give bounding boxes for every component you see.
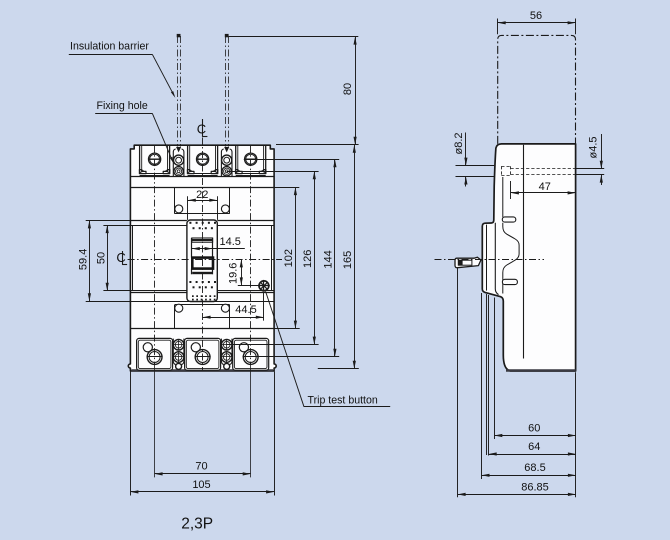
svg-text:Fixing hole: Fixing hole xyxy=(97,100,148,112)
svg-text:70: 70 xyxy=(195,461,207,473)
svg-text:86.85: 86.85 xyxy=(521,482,549,494)
svg-text:22: 22 xyxy=(196,189,208,201)
svg-text:C: C xyxy=(116,250,125,265)
svg-text:105: 105 xyxy=(192,479,210,491)
svg-text:68.5: 68.5 xyxy=(524,462,545,474)
svg-text:126: 126 xyxy=(302,250,314,268)
svg-text:19.6: 19.6 xyxy=(228,263,240,284)
svg-text:C: C xyxy=(197,122,206,137)
svg-text:14.5: 14.5 xyxy=(219,236,240,248)
svg-text:144: 144 xyxy=(323,250,335,268)
svg-text:80: 80 xyxy=(342,83,354,95)
svg-text:60: 60 xyxy=(528,423,540,435)
svg-text:102: 102 xyxy=(283,249,295,267)
svg-text:44.5: 44.5 xyxy=(235,304,256,316)
svg-text:ø8.2: ø8.2 xyxy=(453,132,465,154)
svg-text:56: 56 xyxy=(530,10,542,22)
svg-text:59.4: 59.4 xyxy=(78,249,90,270)
svg-text:2,3P: 2,3P xyxy=(181,516,213,533)
svg-text:50: 50 xyxy=(95,252,107,264)
svg-text:Insulation barrier: Insulation barrier xyxy=(70,40,149,52)
svg-text:64: 64 xyxy=(528,441,540,453)
svg-text:ø4.5: ø4.5 xyxy=(588,136,600,158)
svg-text:47: 47 xyxy=(539,181,551,193)
svg-text:165: 165 xyxy=(342,251,354,269)
svg-text:Trip test button: Trip test button xyxy=(308,394,378,406)
